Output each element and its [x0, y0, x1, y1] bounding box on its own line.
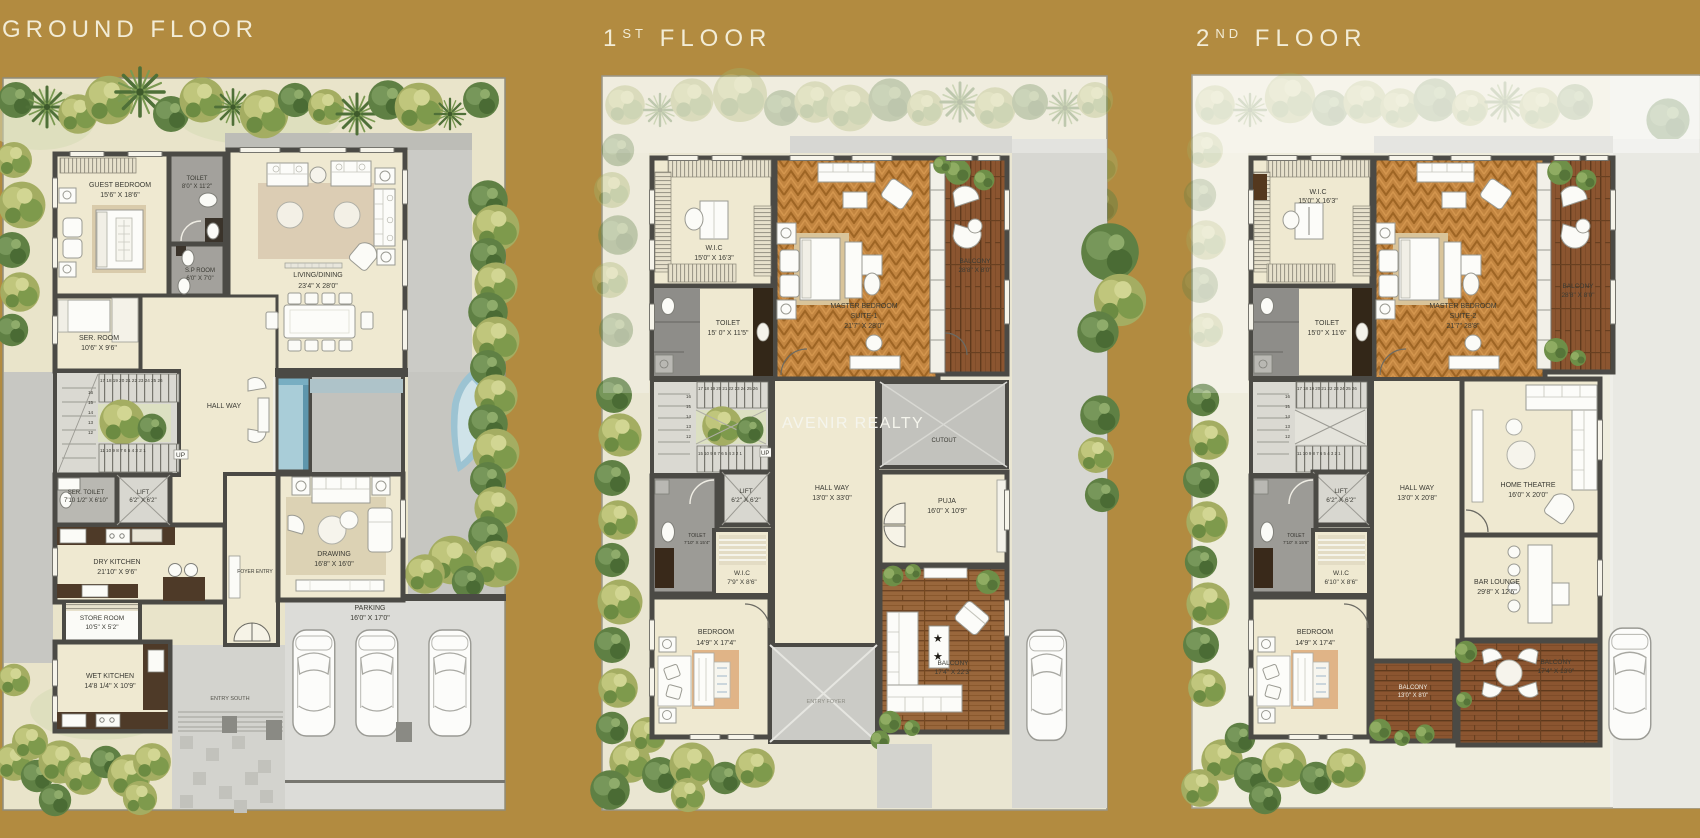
svg-text:SER. TOILET: SER. TOILET — [68, 490, 105, 496]
svg-text:13'0" X 8'0": 13'0" X 8'0" — [1398, 693, 1429, 699]
svg-text:TOILET: TOILET — [716, 320, 741, 327]
svg-text:7'9" X 8'6": 7'9" X 8'6" — [727, 579, 757, 586]
svg-text:23'4" X 28'0": 23'4" X 28'0" — [298, 283, 338, 290]
svg-text:16: 16 — [1285, 394, 1290, 399]
svg-text:ENTRY SOUTH: ENTRY SOUTH — [210, 696, 249, 702]
svg-text:17 18 19 20 21 22 23 24 25 26: 17 18 19 20 21 22 23 24 25 26 — [1297, 386, 1357, 391]
svg-text:SUITE-2: SUITE-2 — [1450, 313, 1477, 320]
svg-text:17'4" X 13'0": 17'4" X 13'0" — [1538, 668, 1575, 675]
svg-text:6'0" X 7'0": 6'0" X 7'0" — [186, 276, 213, 282]
svg-text:DRY KITCHEN: DRY KITCHEN — [93, 559, 140, 566]
svg-text:W.I.C: W.I.C — [1309, 189, 1326, 196]
svg-text:13'0" X 20'8": 13'0" X 20'8" — [1397, 495, 1437, 502]
svg-text:17'4" X 22'3": 17'4" X 22'3" — [935, 669, 972, 676]
svg-text:BALCONY: BALCONY — [937, 660, 969, 667]
svg-text:BEDROOM: BEDROOM — [698, 629, 734, 636]
svg-text:16'0" X 17'0": 16'0" X 17'0" — [350, 615, 390, 622]
svg-text:7'10" X 15'4": 7'10" X 15'4" — [684, 540, 710, 545]
svg-text:12: 12 — [88, 430, 94, 435]
svg-text:LIFT: LIFT — [1334, 488, 1347, 495]
svg-text:ENTRY FOYER: ENTRY FOYER — [807, 699, 846, 705]
svg-text:15: 15 — [1285, 404, 1290, 409]
svg-text:16: 16 — [88, 390, 94, 395]
svg-text:BEDROOM: BEDROOM — [1297, 629, 1333, 636]
svg-text:11 10 9 8 7 6 5 4 3 2: 11 10 9 8 7 6 5 4 3 2 1 — [1297, 451, 1341, 456]
svg-text:CUTOUT: CUTOUT — [932, 438, 957, 444]
svg-text:16'0" X 20'0": 16'0" X 20'0" — [1508, 492, 1548, 499]
svg-text:10'6" X 9'6": 10'6" X 9'6" — [81, 345, 117, 352]
svg-text:LIFT: LIFT — [137, 490, 150, 496]
svg-text:14: 14 — [686, 414, 691, 419]
svg-text:W.I.C: W.I.C — [1333, 570, 1349, 577]
svg-text:LIFT: LIFT — [739, 488, 752, 495]
svg-text:TOILET: TOILET — [688, 533, 705, 539]
svg-text:15 10 9 8 7 6 5 4 3 2: 15 10 9 8 7 6 5 4 3 2 1 — [698, 451, 743, 456]
svg-text:GUEST BEDROOM: GUEST BEDROOM — [89, 182, 151, 189]
svg-text:7'10 1/2" X 6'10": 7'10 1/2" X 6'10" — [64, 498, 108, 504]
svg-text:13: 13 — [88, 420, 94, 425]
svg-text:10'5" X 5'2": 10'5" X 5'2" — [85, 624, 119, 631]
svg-text:14: 14 — [1285, 414, 1290, 419]
svg-text:DRAWING: DRAWING — [317, 551, 351, 558]
svg-text:6'10" X 8'6": 6'10" X 8'6" — [1324, 579, 1358, 586]
svg-text:WET KITCHEN: WET KITCHEN — [86, 673, 134, 680]
svg-text:AVENIR REALTY: AVENIR REALTY — [782, 415, 924, 432]
svg-text:12: 12 — [1285, 434, 1290, 439]
svg-text:6'2" X 6'2": 6'2" X 6'2" — [731, 497, 761, 504]
svg-text:HALL WAY: HALL WAY — [207, 403, 242, 410]
svg-text:12: 12 — [686, 434, 691, 439]
svg-text:13: 13 — [686, 424, 691, 429]
svg-text:8'0" X 11'2": 8'0" X 11'2" — [182, 184, 212, 190]
svg-text:W.I.C: W.I.C — [705, 245, 722, 252]
svg-text:21'7" X 28'0": 21'7" X 28'0" — [844, 323, 884, 330]
svg-text:★: ★ — [933, 633, 943, 645]
svg-text:UP: UP — [176, 452, 185, 459]
svg-text:MASTER BEDROOM: MASTER BEDROOM — [1429, 303, 1496, 310]
svg-text:6'2" X 6'2": 6'2" X 6'2" — [129, 498, 156, 504]
svg-text:17 18 19 20 21 22 23 24 25 26: 17 18 19 20 21 22 23 24 25 26 — [100, 378, 163, 383]
svg-text:BALCONY: BALCONY — [1562, 283, 1594, 290]
svg-text:14: 14 — [88, 410, 94, 415]
svg-text:28'8" X 8'0": 28'8" X 8'0" — [958, 267, 992, 274]
svg-text:6'2" X 6'2": 6'2" X 6'2" — [1326, 497, 1356, 504]
svg-text:14'9" X 17'4": 14'9" X 17'4" — [1295, 640, 1335, 647]
svg-text:28'8" X 8'0": 28'8" X 8'0" — [1561, 292, 1595, 299]
svg-text:16'0" X 10'9": 16'0" X 10'9" — [927, 508, 967, 515]
svg-text:STORE ROOM: STORE ROOM — [80, 615, 124, 622]
svg-text:16: 16 — [686, 394, 691, 399]
svg-text:15'6" X 18'6": 15'6" X 18'6" — [100, 192, 140, 199]
svg-text:29'8" X 12'6": 29'8" X 12'6" — [1477, 589, 1517, 596]
svg-text:15'0" X 16'3": 15'0" X 16'3" — [694, 255, 734, 262]
svg-text:15: 15 — [88, 400, 94, 405]
svg-text:LIVING/DINING: LIVING/DINING — [293, 272, 342, 279]
svg-text:BALCONY: BALCONY — [1399, 685, 1428, 691]
svg-text:TOILET: TOILET — [187, 176, 208, 182]
svg-text:14'9" X 17'4": 14'9" X 17'4" — [696, 640, 736, 647]
svg-text:PUJA: PUJA — [938, 498, 956, 505]
svg-text:SER. ROOM: SER. ROOM — [79, 335, 119, 342]
svg-text:S.P ROOM: S.P ROOM — [185, 268, 215, 274]
svg-text:15'0" X 16'3": 15'0" X 16'3" — [1298, 198, 1338, 205]
svg-text:SUITE-1: SUITE-1 — [851, 313, 878, 320]
svg-text:MASTER BEDROOM: MASTER BEDROOM — [830, 303, 897, 310]
svg-text:BALCONY: BALCONY — [1540, 659, 1572, 666]
svg-text:21'7" 28'8": 21'7" 28'8" — [1447, 323, 1480, 330]
svg-text:15'0" X 11'6": 15'0" X 11'6" — [1307, 330, 1347, 337]
svg-text:16'8" X 16'0": 16'8" X 16'0" — [314, 561, 354, 568]
svg-text:W.I.C: W.I.C — [734, 570, 750, 577]
svg-text:FOYER ENTRY: FOYER ENTRY — [237, 569, 273, 575]
svg-text:BAR LOUNGE: BAR LOUNGE — [1474, 579, 1520, 586]
svg-text:14'8 1/4" X 10'9": 14'8 1/4" X 10'9" — [84, 683, 136, 690]
svg-text:13: 13 — [1285, 424, 1290, 429]
svg-text:11 10 9 8 7 6 5 4 3 2: 11 10 9 8 7 6 5 4 3 2 1 — [100, 448, 146, 453]
svg-text:13'0" X 33'0": 13'0" X 33'0" — [812, 495, 852, 502]
svg-text:HALL WAY: HALL WAY — [815, 485, 850, 492]
svg-text:GROUND FLOOR: GROUND FLOOR — [2, 16, 258, 43]
svg-text:15: 15 — [686, 404, 691, 409]
svg-text:HOME THEATRE: HOME THEATRE — [1501, 482, 1556, 489]
svg-text:21'10" X 9'6": 21'10" X 9'6" — [97, 569, 137, 576]
svg-text:PARKING: PARKING — [355, 605, 386, 612]
svg-text:15' 0" X 11'5": 15' 0" X 11'5" — [708, 330, 750, 337]
svg-text:UP: UP — [761, 451, 769, 457]
svg-text:BALCONY: BALCONY — [959, 258, 991, 265]
svg-text:7'10" X 15'6": 7'10" X 15'6" — [1283, 540, 1309, 545]
svg-text:TOILET: TOILET — [1315, 320, 1340, 327]
svg-text:17 18 19 20 21 22 23 24 25 26: 17 18 19 20 21 22 23 24 25 26 — [698, 386, 758, 391]
svg-text:HALL WAY: HALL WAY — [1400, 485, 1435, 492]
svg-text:TOILET: TOILET — [1287, 533, 1304, 539]
